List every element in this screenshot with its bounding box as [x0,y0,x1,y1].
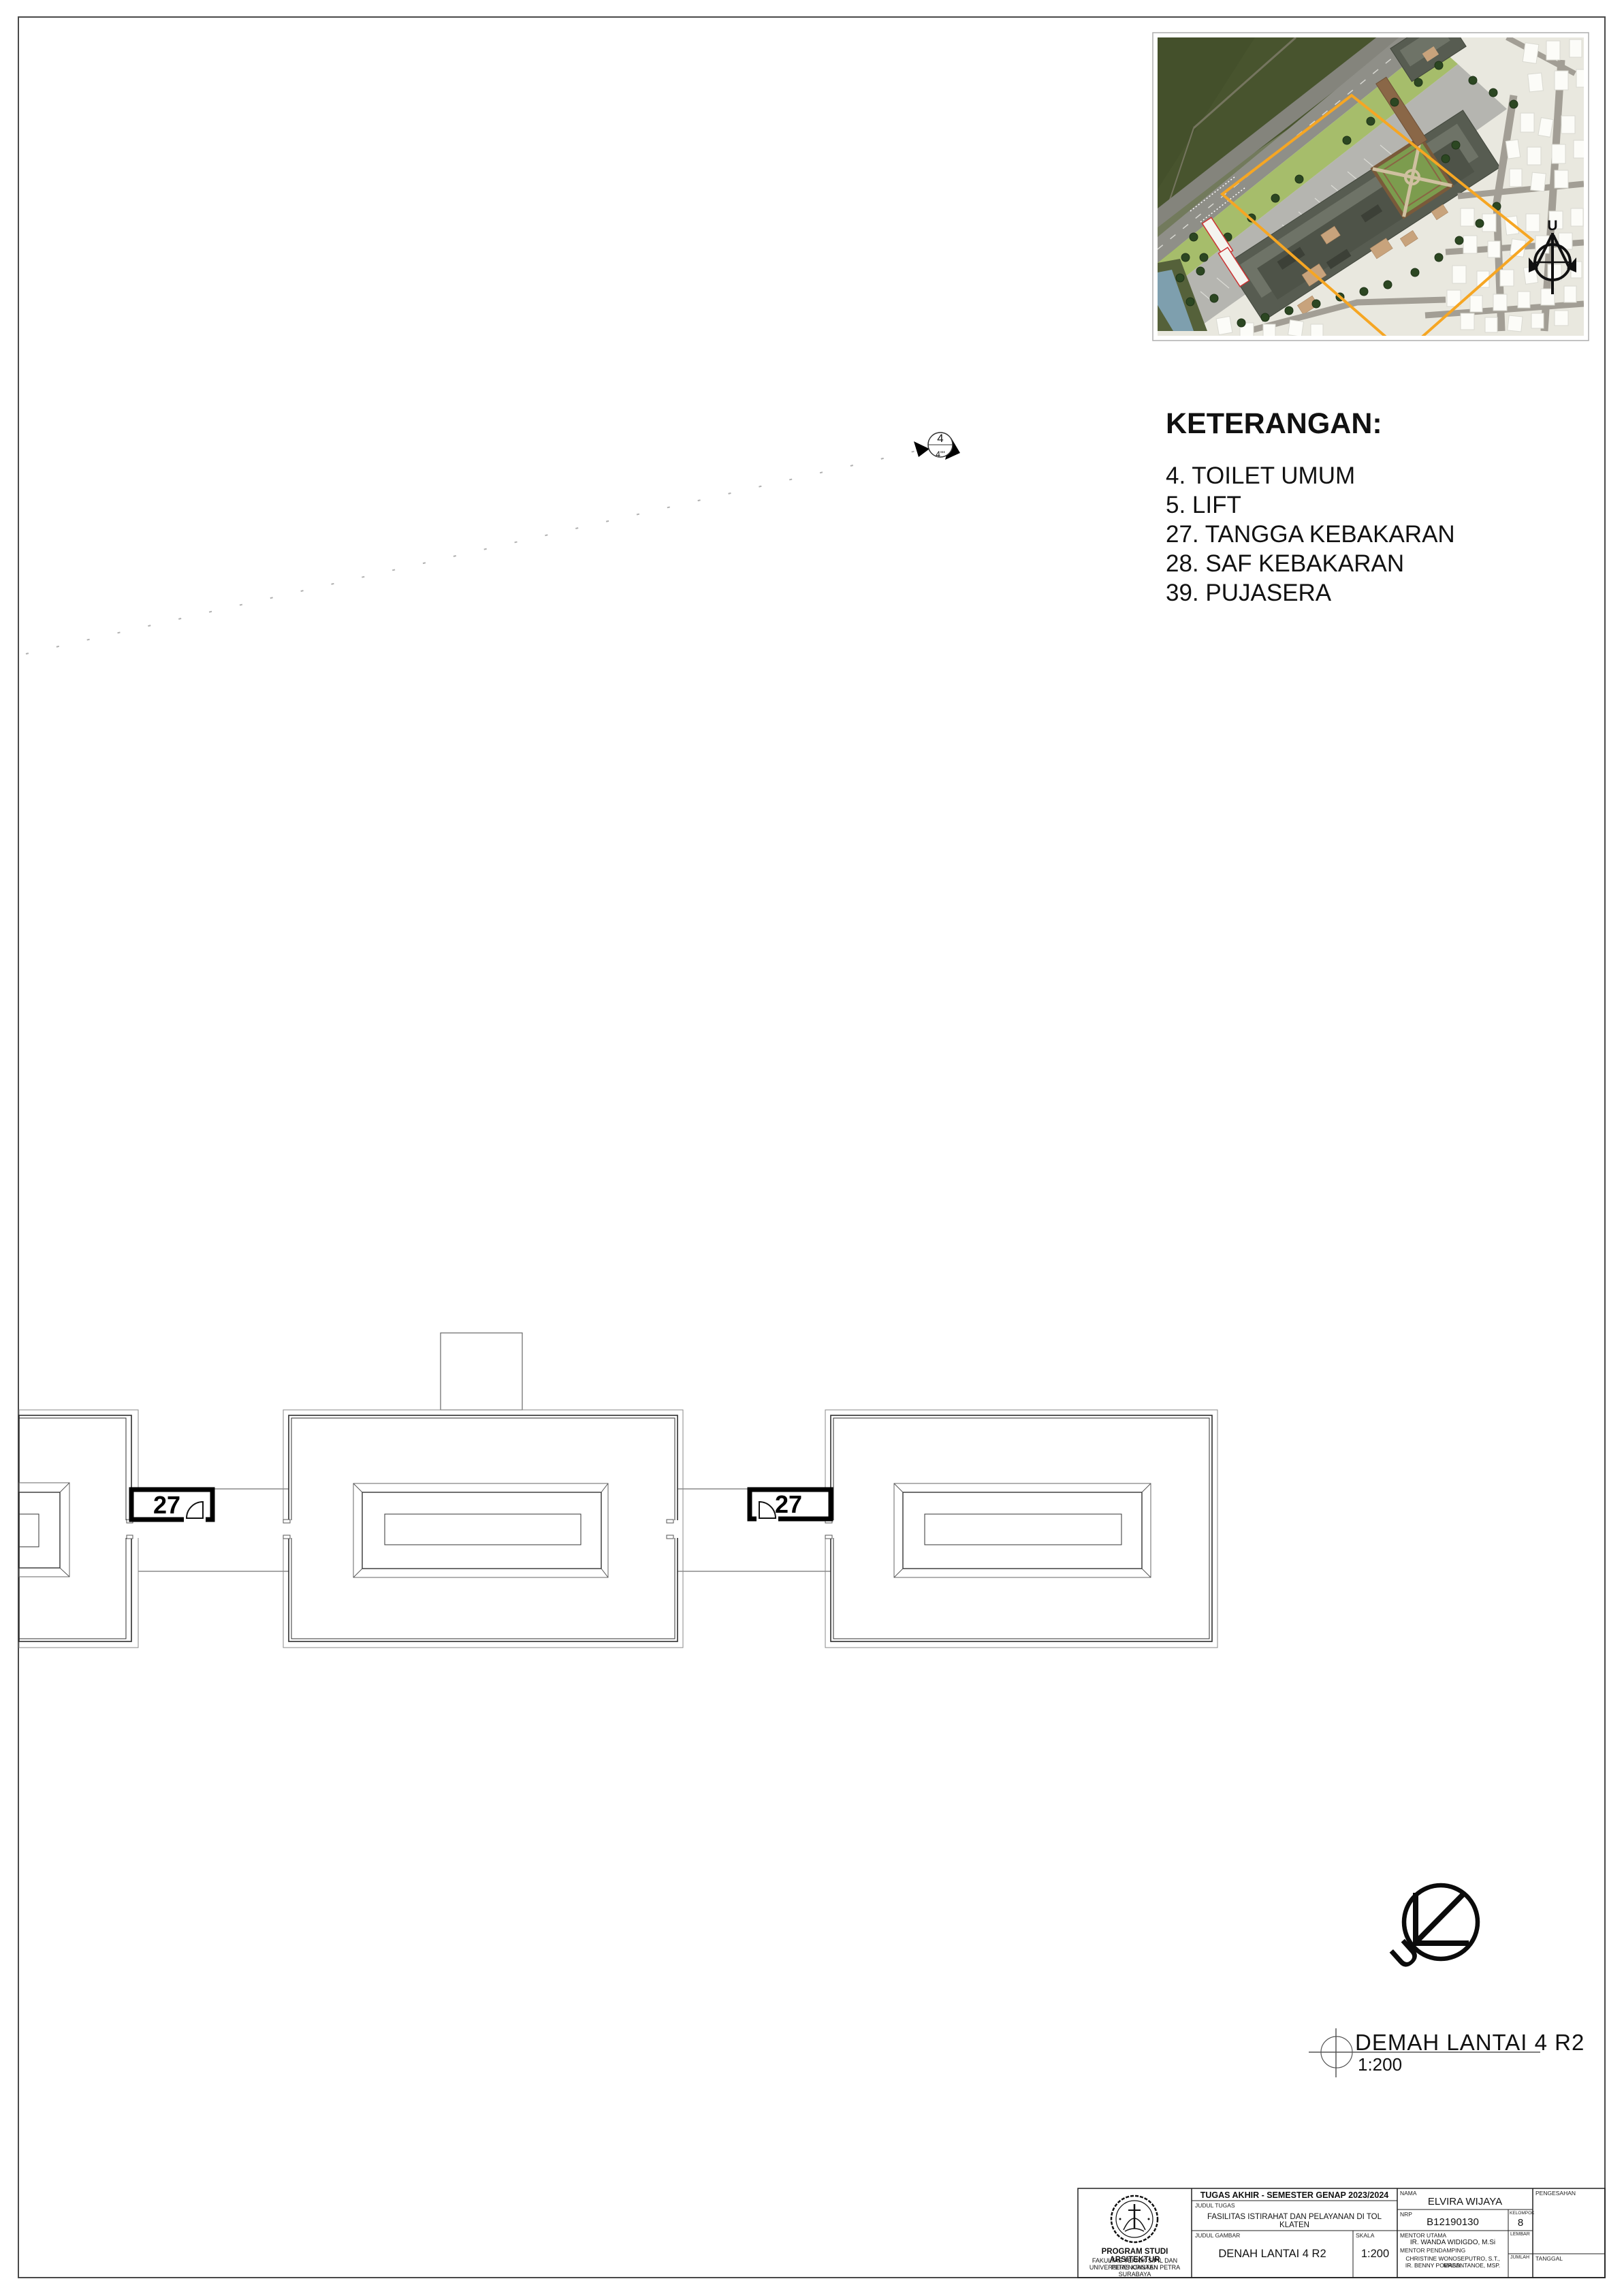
legend-item: 27. TANGGA KEBAKARAN [1166,520,1455,549]
building-left [19,1410,140,1648]
section-marker-number: 4 [937,432,943,445]
legend-item: 5. LIFT [1166,490,1455,520]
mentor-pendamping-2: IR. BENNY POERBANTANOE, MSP. [1397,2262,1508,2269]
page-border [18,17,1605,2278]
kelompok-label: KELOMPOK [1510,2211,1534,2216]
judul-gambar-label: JUDUL GAMBAR [1195,2232,1240,2239]
judul-tugas-label: JUDUL TUGAS [1195,2202,1235,2209]
drawing-sheet: { "legend": { "title": "KETERANGAN:", "i… [0,0,1624,2296]
building-middle [282,1333,683,1648]
map-north-label: U [1547,218,1557,234]
skala-label: SKALA [1356,2232,1374,2239]
sheet-graphics: U 4 4''' [0,0,1624,2296]
tanggal-label: TANGGAL [1535,2255,1563,2262]
roof-appendage [441,1333,522,1410]
kelompok-value: 8 [1508,2217,1533,2229]
fire-stair-label-2: 27 [775,1490,802,1518]
institution-line4: SURABAYA [1078,2271,1192,2278]
university-logo [1111,2196,1158,2242]
mentor-utama-value: IR. WANDA WIDIGDO, M.Si [1397,2239,1508,2246]
nrp-value: B12190130 [1397,2216,1508,2228]
fire-stair-box-2: 27 [750,1490,831,1524]
legend: KETERANGAN: 4. TOILET UMUM 5. LIFT 27. T… [1166,407,1455,608]
north-arrow: U [1383,1885,1478,1977]
legend-title: KETERANGAN: [1166,407,1455,441]
section-marker: 4 4''' [914,432,960,460]
drawing-title: DEMAH LANTAI 4 R2 [1355,2030,1585,2056]
mentor-utama-label: MENTOR UTAMA [1400,2232,1446,2239]
mentor-pendamping-label: MENTOR PENDAMPING [1400,2247,1465,2254]
skala-value: 1:200 [1353,2248,1397,2261]
judul-gambar-value: DENAH LANTAI 4 R2 [1192,2248,1353,2261]
judul-tugas-value: FASILITAS ISTIRAHAT DAN PELAYANAN DI TOL… [1192,2213,1397,2229]
fire-stair-box-1: 27 [131,1490,212,1524]
institution-line3: UNIVERSITAS KRISTEN PETRA [1078,2264,1192,2271]
site-map: U [1153,13,1589,353]
building-right [824,1410,1217,1648]
course-header: TUGAS AKHIR - SEMESTER GENAP 2023/2024 [1192,2190,1397,2200]
legend-item: 28. SAF KEBAKARAN [1166,549,1455,578]
section-line [26,448,928,654]
nama-value: ELVIRA WIJAYA [1397,2196,1533,2207]
legend-item: 4. TOILET UMUM [1166,461,1455,490]
corridor-lines [138,1489,831,1571]
fire-stair-label-1: 27 [153,1491,180,1519]
drawing-scale: 1:200 [1358,2054,1402,2075]
lembar-label: LEMBAR [1510,2232,1530,2237]
section-marker-sheet: 4''' [936,450,945,459]
legend-item: 39. PUJASERA [1166,578,1455,608]
pengesahan-label: PENGESAHAN [1535,2190,1576,2197]
jumlah-label: JUMLAH [1510,2255,1529,2260]
floor-plan: 27 27 [19,1333,1217,1648]
